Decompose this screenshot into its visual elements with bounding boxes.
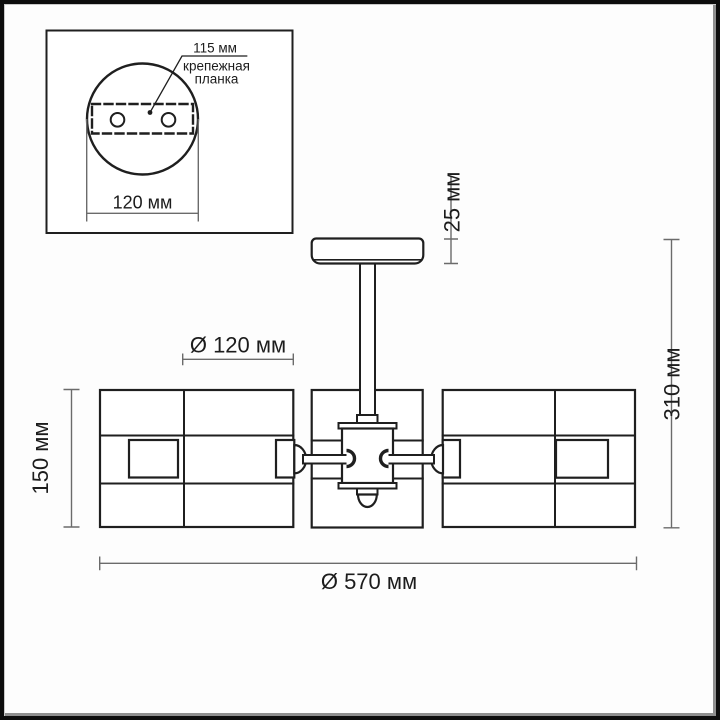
left-arm-joint [347, 451, 355, 467]
drawing-canvas: 25 мм Ø 120 мм 150 мм 310 мм Ø 570 мм 11… [0, 0, 720, 720]
hub-top-collar [357, 415, 378, 423]
dim-shade-diameter-label: Ø 120 мм [190, 333, 286, 358]
dim-total-diameter: Ø 570 мм [100, 557, 637, 595]
right-arm [387, 455, 435, 464]
dim-canopy-height: 25 мм [440, 172, 465, 264]
dim-plate-width-label: 120 мм [113, 193, 173, 213]
ceiling-plate-circle [87, 64, 198, 175]
dim-shade-height-lines [64, 390, 80, 528]
finial-dome [358, 495, 377, 507]
left-arm [303, 455, 349, 464]
left-socket-block [276, 440, 294, 478]
down-rod [360, 264, 375, 416]
bracket-label-line2: планка [195, 72, 239, 87]
dim-total-height: 310 мм [660, 240, 685, 528]
right-arm-joint [381, 451, 389, 467]
dim-total-diameter-label: Ø 570 мм [321, 569, 417, 594]
dim-shade-diameter: Ø 120 мм [183, 333, 294, 366]
dim-shade-height-label: 150 мм [28, 421, 53, 494]
mounting-detail-inset: 115 мм крепежная планка 120 мм [47, 31, 293, 234]
ceiling-canopy [312, 239, 424, 264]
dim-canopy-height-label: 25 мм [440, 172, 465, 233]
left-shade [100, 390, 306, 527]
hole-pitch-label: 115 мм [193, 41, 237, 56]
left-shade-inner-panel [129, 440, 178, 478]
dim-total-height-label: 310 мм [660, 347, 685, 420]
right-shade [431, 390, 635, 527]
right-shade-inner-panel [556, 440, 608, 478]
right-socket-block [443, 440, 460, 478]
fixture-technical-drawing: 25 мм Ø 120 мм 150 мм 310 мм Ø 570 мм 11… [4, 4, 716, 716]
dim-shade-height: 150 мм [28, 390, 80, 528]
